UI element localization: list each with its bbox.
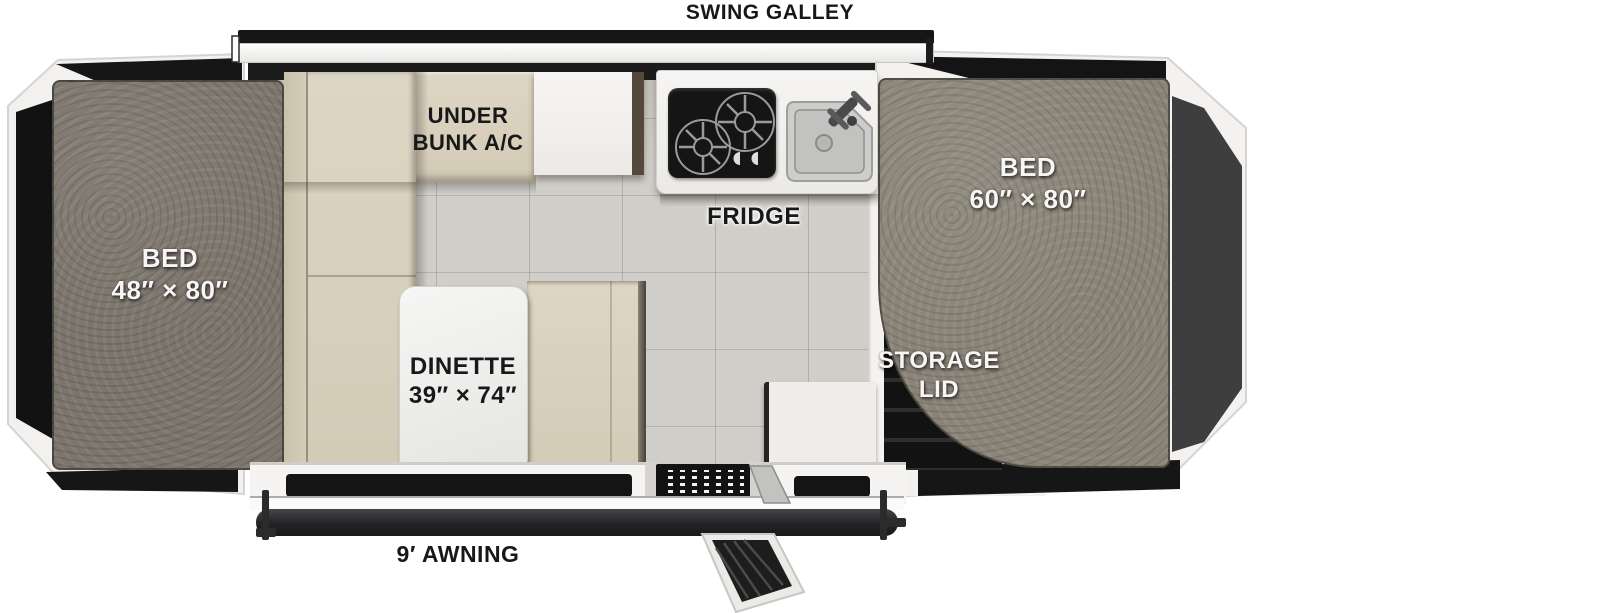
floorplan-canvas: SWING GALLEY UNDER BUNK A/C FRIDGE BED 4…: [0, 0, 1600, 613]
label-under-bunk-ac-line1: UNDER: [368, 103, 568, 130]
label-storage-lid-line2: LID: [858, 375, 1020, 404]
label-bed-left-line1: BED: [70, 243, 270, 275]
detail-layer: [0, 0, 1600, 613]
label-awning: 9′ AWNING: [358, 540, 558, 568]
label-bed-left: BED 48″ × 80″: [70, 243, 270, 306]
burner-right-icon: [716, 93, 774, 151]
stove-knob-left: [734, 152, 740, 165]
sink-drain: [816, 135, 832, 151]
label-bed-right-line2: 60″ × 80″: [928, 184, 1128, 216]
stove-knob-right: [752, 152, 759, 165]
label-under-bunk-ac: UNDER BUNK A/C: [368, 103, 568, 157]
sink: [787, 90, 872, 181]
label-bed-right: BED 60″ × 80″: [928, 152, 1128, 215]
label-storage-lid-line1: STORAGE: [858, 346, 1020, 375]
label-dinette-line2: 39″ × 74″: [383, 381, 543, 410]
burner-left-icon: [676, 120, 730, 174]
label-bed-right-line1: BED: [928, 152, 1128, 184]
label-bed-left-line2: 48″ × 80″: [70, 275, 270, 307]
step-hinge-plate: [750, 466, 790, 503]
fold-out-step: [702, 534, 804, 612]
label-dinette-line1: DINETTE: [383, 352, 543, 381]
awning-bracket-right: [880, 490, 906, 540]
label-swing-galley: SWING GALLEY: [620, 0, 920, 26]
awning-bracket-left: [256, 490, 276, 540]
rail-bracket-right: [926, 38, 933, 64]
label-dinette: DINETTE 39″ × 74″: [383, 352, 543, 411]
rail-bracket-left: [232, 36, 239, 62]
label-under-bunk-ac-line2: BUNK A/C: [368, 130, 568, 157]
label-storage-lid: STORAGE LID: [858, 346, 1020, 405]
label-fridge: FRIDGE: [674, 202, 834, 231]
